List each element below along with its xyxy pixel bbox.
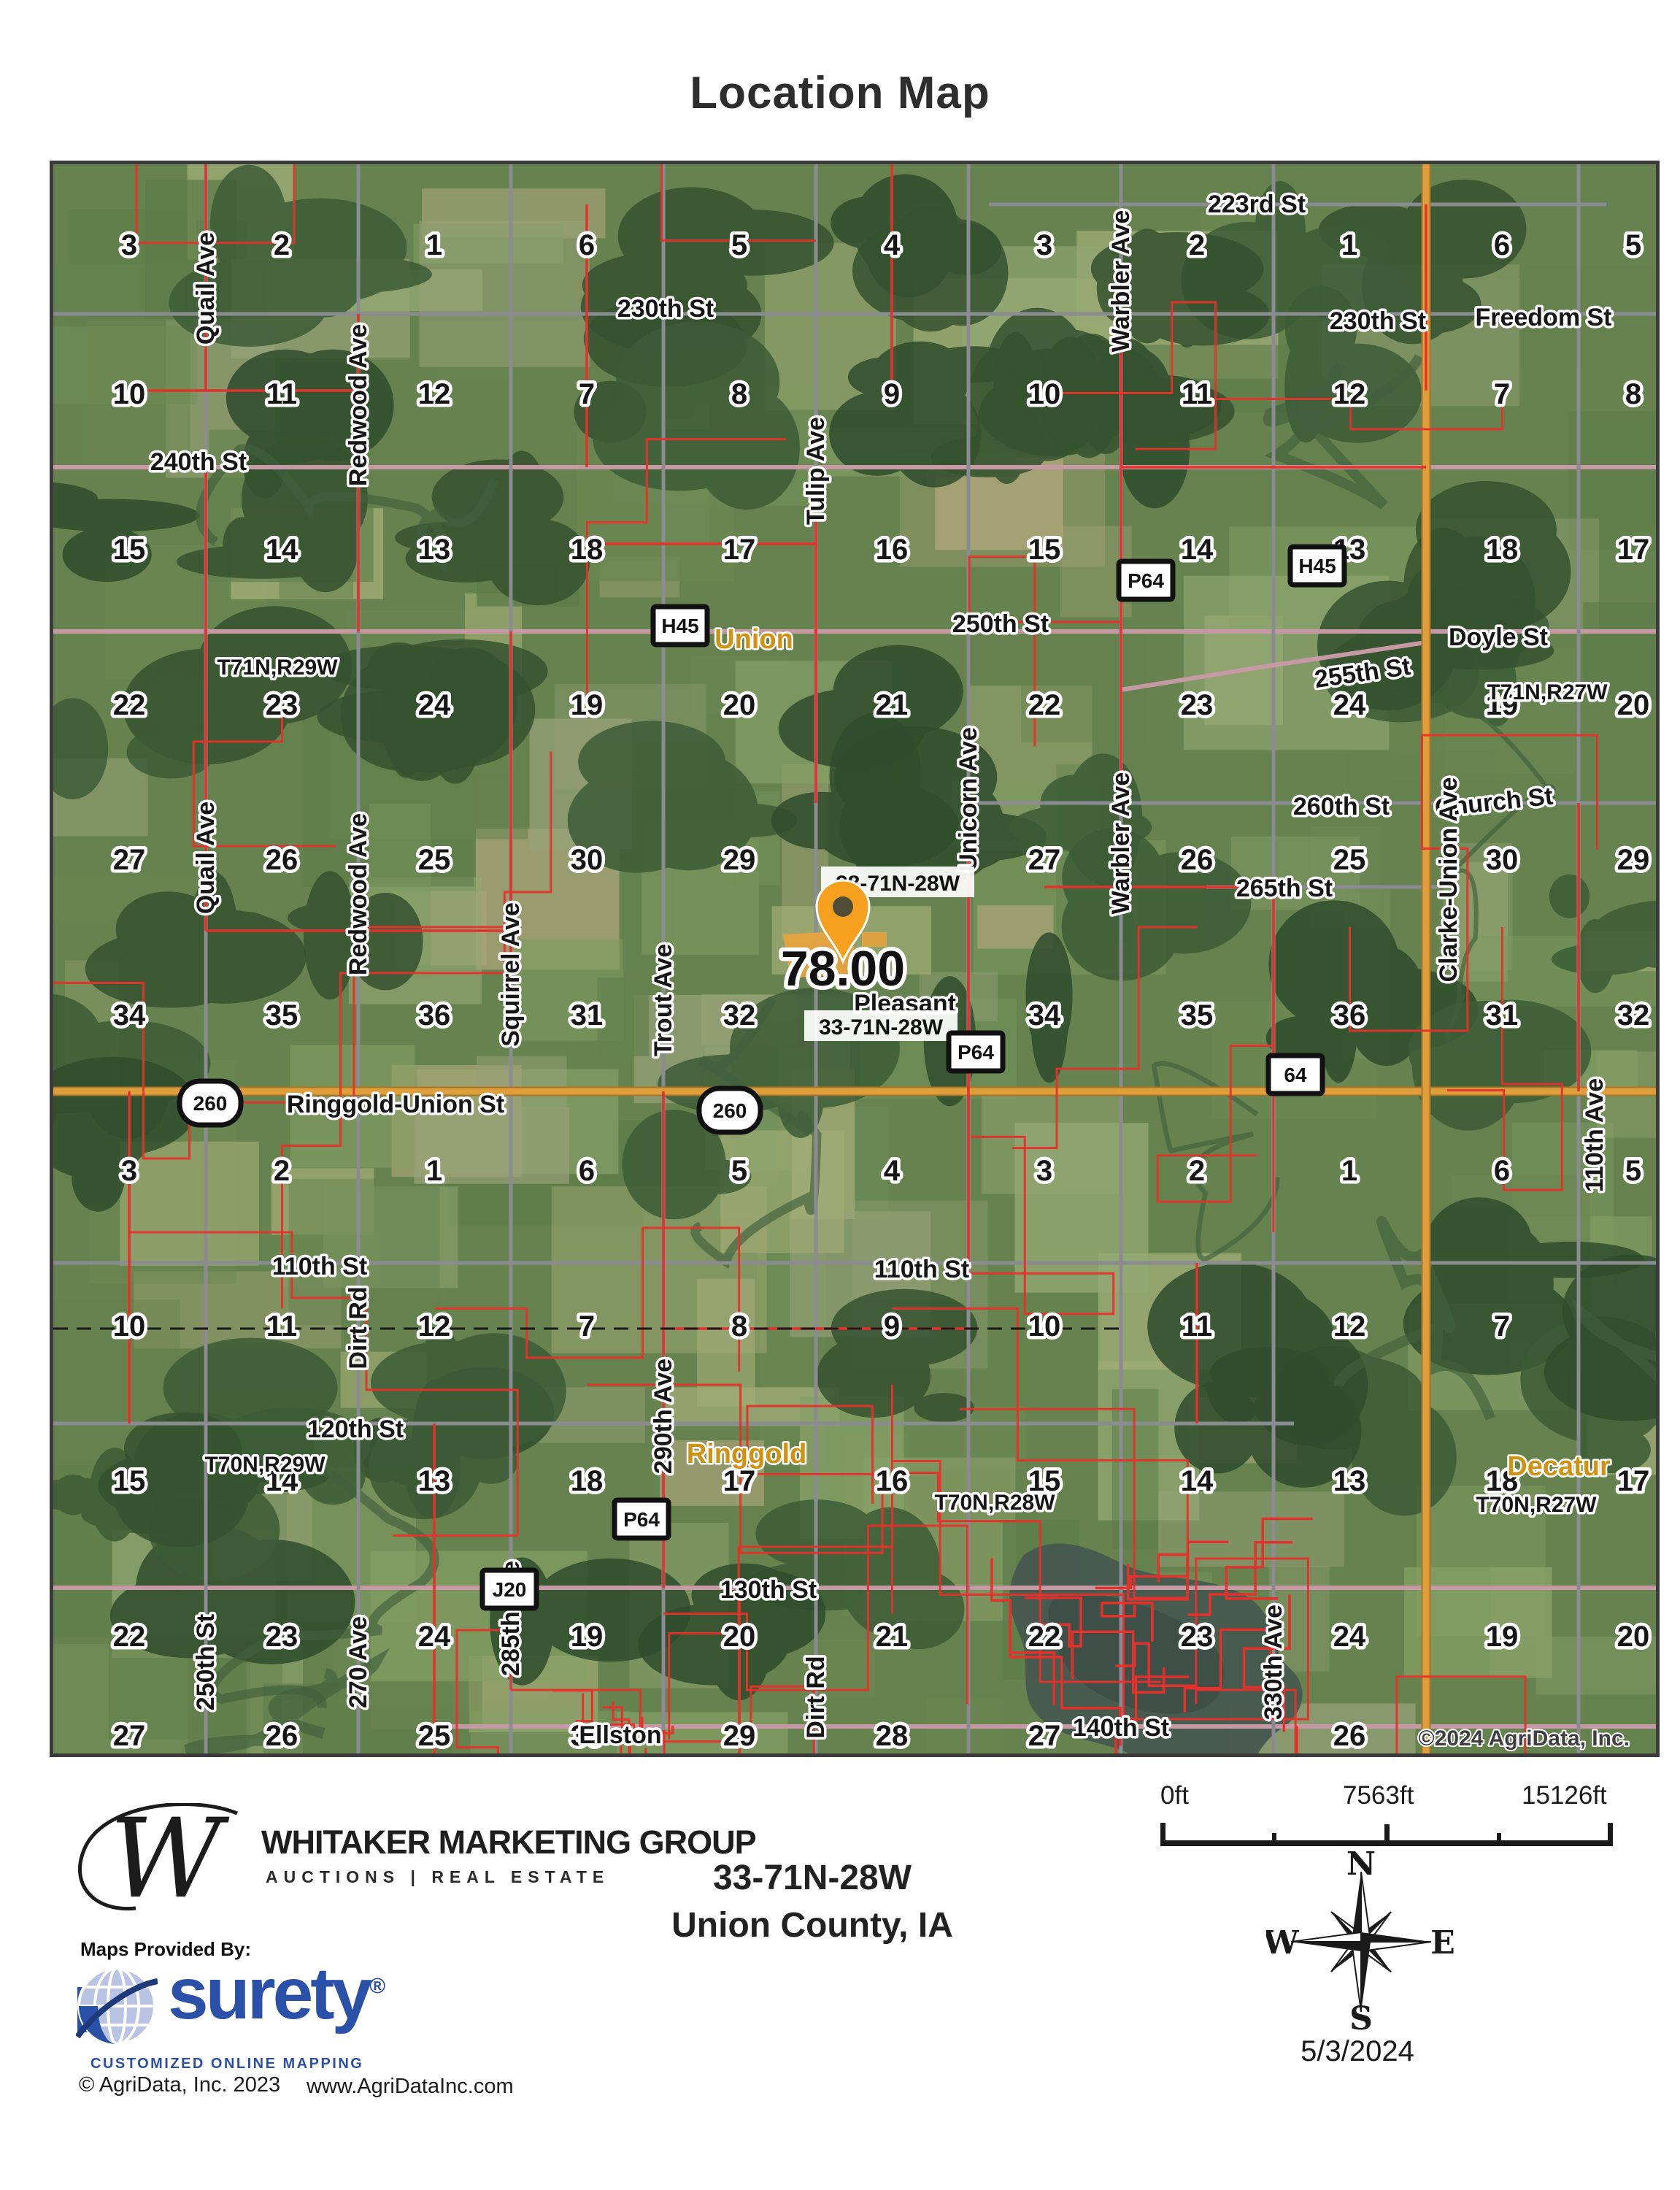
- section-number: 21: [876, 689, 909, 721]
- section-number: 14: [1181, 534, 1214, 566]
- street-label: Squirrel Ave: [497, 902, 525, 1047]
- svg-text:260: 260: [193, 1092, 228, 1115]
- section-number: 4: [884, 1155, 901, 1187]
- highway-shield: 260: [699, 1088, 760, 1132]
- street-label: Clarke-Union Ave: [1435, 777, 1463, 983]
- highway-shield: P64: [1119, 561, 1173, 599]
- section-number: 3: [1036, 229, 1052, 261]
- section-number: 7: [579, 1310, 595, 1342]
- street-label: Quail Ave: [192, 802, 220, 914]
- section-number: 31: [1486, 999, 1519, 1031]
- surety-logo: surety® CUSTOMIZED ONLINE MAPPING: [76, 1965, 385, 2072]
- scale-bar-graphic: [1160, 1814, 1620, 1847]
- street-label: Dirt Rd: [344, 1286, 372, 1369]
- svg-text:N: N: [1346, 1845, 1376, 1883]
- section-number: 23: [266, 1621, 298, 1653]
- scale-label-mid: 7563ft: [1343, 1781, 1414, 1810]
- section-number: 6: [579, 229, 595, 261]
- highway-shield: 64: [1268, 1056, 1322, 1094]
- section-number: 2: [274, 229, 290, 261]
- section-number: 27: [113, 844, 146, 876]
- street-label: 230th St: [617, 295, 714, 323]
- svg-text:W: W: [109, 1803, 230, 1920]
- whitaker-monogram-icon: W: [66, 1803, 248, 1920]
- section-number: 8: [731, 1310, 747, 1342]
- highway-shield: 260: [180, 1081, 241, 1125]
- section-number: 24: [418, 689, 451, 721]
- section-number: 13: [1333, 1465, 1366, 1497]
- svg-text:J20: J20: [493, 1578, 527, 1601]
- section-number: 14: [266, 534, 298, 566]
- svg-text:260: 260: [713, 1099, 747, 1122]
- svg-text:H45: H45: [1298, 555, 1336, 577]
- section-number: 22: [1028, 1621, 1061, 1653]
- street-label: 250th St: [952, 610, 1049, 638]
- section-number: 31: [571, 999, 604, 1031]
- section-number: 7: [1494, 1310, 1510, 1342]
- section-number: 35: [1181, 999, 1214, 1031]
- section-number: 8: [1625, 378, 1641, 410]
- compass-rose: N S W E: [1266, 1845, 1456, 2035]
- section-number: 10: [113, 1310, 146, 1342]
- street-label: Ellston: [579, 1721, 661, 1749]
- section-number: 23: [1181, 689, 1214, 721]
- section-number: 16: [876, 534, 909, 566]
- map-copyright: ©2024 AgriData, Inc.: [1419, 1726, 1630, 1751]
- street-label: 250th St: [192, 1614, 220, 1710]
- location-map-page: Location Map 321654321651011127891011127…: [0, 0, 1680, 2190]
- map-date: 5/3/2024: [1248, 2035, 1467, 2068]
- section-number: 12: [1333, 1310, 1366, 1342]
- section-number: 14: [1181, 1465, 1214, 1497]
- section-number: 6: [1494, 229, 1510, 261]
- section-number: 7: [579, 378, 595, 410]
- section-number: 15: [1028, 534, 1061, 566]
- section-number: 17: [1617, 1465, 1650, 1497]
- section-number: 4: [884, 229, 901, 261]
- street-label: Redwood Ave: [344, 324, 372, 486]
- section-number: 19: [1486, 1621, 1519, 1653]
- section-number: 5: [731, 1155, 747, 1187]
- aerial-map[interactable]: 3216543216510111278910111278151413181716…: [50, 161, 1660, 1757]
- section-number: 26: [266, 844, 298, 876]
- section-number: 18: [1486, 534, 1519, 566]
- section-number: 27: [1028, 844, 1061, 876]
- street-label: Unicorn Ave: [955, 727, 982, 872]
- section-number: 29: [723, 844, 756, 876]
- section-number: 35: [266, 999, 298, 1031]
- township-label: T71N,R29W: [217, 656, 338, 680]
- section-number: 30: [571, 844, 604, 876]
- section-number: 3: [121, 1155, 137, 1187]
- street-label: 330th Ave: [1260, 1605, 1287, 1720]
- section-number: 23: [1181, 1621, 1214, 1653]
- svg-text:P64: P64: [623, 1508, 660, 1531]
- street-label: 120th St: [307, 1415, 404, 1443]
- section-number: 17: [723, 1465, 756, 1497]
- section-number: 3: [121, 229, 137, 261]
- street-label: Dirt Rd: [802, 1656, 830, 1738]
- township-label: T70N,R28W: [934, 1491, 1055, 1515]
- street-label: 110th Ave: [1581, 1078, 1608, 1192]
- section-number: 1: [426, 229, 442, 261]
- section-number: 34: [113, 999, 146, 1031]
- section-number: 22: [113, 689, 146, 721]
- section-number: 15: [113, 534, 146, 566]
- section-number: 20: [723, 1621, 756, 1653]
- street-label: Tulip Ave: [802, 417, 830, 525]
- street-label: 130th St: [720, 1576, 817, 1604]
- section-number: 27: [113, 1720, 146, 1752]
- section-number: 9: [884, 378, 900, 410]
- section-number: 5: [731, 229, 747, 261]
- street-label: Ringgold-Union St: [287, 1091, 504, 1118]
- town-label: Ringgold: [687, 1439, 807, 1469]
- surety-wordmark: surety®: [168, 1965, 385, 2022]
- highway-shield: H45: [653, 607, 707, 645]
- section-number: 15: [113, 1465, 146, 1497]
- street-label: 270 Ave: [344, 1616, 372, 1708]
- section-number: 10: [1028, 378, 1061, 410]
- section-number: 13: [418, 1465, 451, 1497]
- township-label: T70N,R27W: [1476, 1493, 1597, 1517]
- section-number: 6: [579, 1155, 595, 1187]
- township-label: T71N,R27W: [1487, 680, 1608, 704]
- svg-text:H45: H45: [661, 615, 698, 637]
- section-number: 29: [723, 1720, 756, 1752]
- highway-shield: P64: [949, 1033, 1003, 1071]
- section-number: 7: [1494, 378, 1510, 410]
- township-label: T70N,R29W: [204, 1453, 325, 1477]
- section-number: 20: [1617, 1621, 1650, 1653]
- street-label: Warbler Ave: [1107, 210, 1135, 353]
- highway-shield: P64: [614, 1500, 668, 1538]
- scale-label-0: 0ft: [1160, 1781, 1189, 1810]
- street-label: Trout Ave: [650, 944, 677, 1056]
- section-number: 10: [1028, 1310, 1061, 1342]
- svg-text:33-71N-28W: 33-71N-28W: [819, 1015, 944, 1040]
- page-title: Location Map: [0, 67, 1680, 119]
- globe-icon: [76, 1965, 158, 2051]
- section-number: 26: [1181, 844, 1214, 876]
- section-number: 23: [266, 689, 298, 721]
- section-number: 20: [1617, 689, 1650, 721]
- section-number: 24: [1333, 1621, 1366, 1653]
- street-label: Quail Ave: [192, 232, 220, 345]
- section-number: 24: [1333, 689, 1366, 721]
- parcel-id-label: 33-71N-28W: [804, 1010, 957, 1041]
- section-number: 36: [1333, 999, 1366, 1031]
- section-number: 11: [266, 378, 297, 410]
- section-number: 10: [113, 378, 146, 410]
- section-number: 20: [723, 689, 756, 721]
- section-number: 25: [1333, 844, 1366, 876]
- section-number: 11: [1182, 378, 1212, 410]
- street-label: 110th St: [272, 1253, 367, 1280]
- street-label: Freedom St: [1475, 304, 1611, 331]
- town-label: Union: [714, 624, 793, 655]
- agridata-website[interactable]: www.AgriDataInc.com: [307, 2075, 514, 2099]
- svg-text:P64: P64: [957, 1041, 994, 1064]
- section-number: 24: [418, 1621, 451, 1653]
- street-label: 140th St: [1073, 1714, 1169, 1742]
- section-number: 25: [418, 1720, 451, 1752]
- section-number: 12: [418, 1310, 451, 1342]
- section-number: 26: [1333, 1720, 1366, 1752]
- svg-text:W: W: [1266, 1924, 1299, 1962]
- section-number: 29: [1617, 844, 1650, 876]
- section-number: 11: [1182, 1310, 1212, 1342]
- section-number: 18: [571, 534, 604, 566]
- section-number: 19: [571, 1621, 604, 1653]
- location-county: Union County, IA: [666, 1905, 958, 1945]
- whitaker-name: WHITAKER MARKETING GROUP: [261, 1824, 756, 1861]
- street-label: 110th St: [874, 1256, 969, 1283]
- agridata-copyright: © AgriData, Inc. 2023: [79, 2073, 280, 2097]
- section-number: 2: [1189, 1155, 1205, 1187]
- town-label: Decatur: [1507, 1451, 1611, 1482]
- street-label: 240th St: [150, 448, 247, 476]
- highway-shield: J20: [482, 1570, 536, 1608]
- section-number: 12: [1333, 378, 1366, 410]
- street-label: 290th Ave: [650, 1359, 677, 1474]
- street-label: Redwood Ave: [344, 813, 372, 975]
- section-number: 2: [274, 1155, 290, 1187]
- section-number: 25: [418, 844, 451, 876]
- location-title: 33-71N-28W Union County, IA: [666, 1858, 958, 1945]
- section-number: 27: [1028, 1720, 1061, 1752]
- section-number: 9: [884, 1310, 900, 1342]
- section-number: 6: [1494, 1155, 1510, 1187]
- highway-shield: H45: [1290, 547, 1344, 585]
- section-number: 17: [1617, 534, 1650, 566]
- section-number: 13: [418, 534, 451, 566]
- section-number: 8: [731, 378, 747, 410]
- section-number: 26: [266, 1720, 298, 1752]
- section-number: 34: [1028, 999, 1061, 1031]
- street-label: 265th St: [1236, 875, 1333, 902]
- parcel-acreage-label: 78.00: [781, 941, 905, 996]
- section-number: 22: [113, 1621, 146, 1653]
- section-number: 21: [876, 1621, 909, 1653]
- section-number: 1: [426, 1155, 442, 1187]
- section-number: 30: [1486, 844, 1519, 876]
- scale-bar: 0ft 7563ft 15126ft: [1160, 1781, 1620, 1847]
- svg-text:P64: P64: [1128, 569, 1164, 592]
- section-number: 32: [1617, 999, 1650, 1031]
- street-label: 230th St: [1330, 307, 1426, 335]
- section-number: 19: [571, 689, 604, 721]
- section-number: 16: [876, 1465, 909, 1497]
- section-number: 12: [418, 378, 451, 410]
- section-number: 22: [1028, 689, 1061, 721]
- section-number: 1: [1341, 1155, 1357, 1187]
- map-canvas: 3216543216510111278910111278151413181716…: [53, 164, 1656, 1753]
- scale-label-end: 15126ft: [1522, 1781, 1607, 1810]
- street-label: 223rd St: [1208, 191, 1306, 218]
- street-label: Doyle St: [1449, 623, 1548, 651]
- street-label: Warbler Ave: [1107, 772, 1135, 915]
- compass-icon: N S W E: [1266, 1845, 1456, 2035]
- section-number: 1: [1341, 229, 1357, 261]
- section-number: 5: [1625, 229, 1641, 261]
- location-trs: 33-71N-28W: [666, 1858, 958, 1898]
- section-number: 17: [723, 534, 756, 566]
- section-number: 18: [571, 1465, 604, 1497]
- section-number: 11: [266, 1310, 297, 1342]
- section-number: 5: [1625, 1155, 1641, 1187]
- section-number: 36: [418, 999, 451, 1031]
- street-label: 260th St: [1293, 793, 1390, 821]
- svg-text:S: S: [1349, 2000, 1373, 2035]
- section-number: 28: [876, 1720, 909, 1752]
- surety-tagline: CUSTOMIZED ONLINE MAPPING: [90, 2056, 385, 2072]
- section-number: 2: [1189, 229, 1205, 261]
- section-number: 3: [1036, 1155, 1052, 1187]
- svg-text:64: 64: [1284, 1064, 1307, 1086]
- whitaker-logo: W WHITAKER MARKETING GROUP AUCTIONS | RE…: [66, 1803, 756, 1920]
- section-number: 32: [723, 999, 756, 1031]
- svg-text:E: E: [1430, 1924, 1455, 1962]
